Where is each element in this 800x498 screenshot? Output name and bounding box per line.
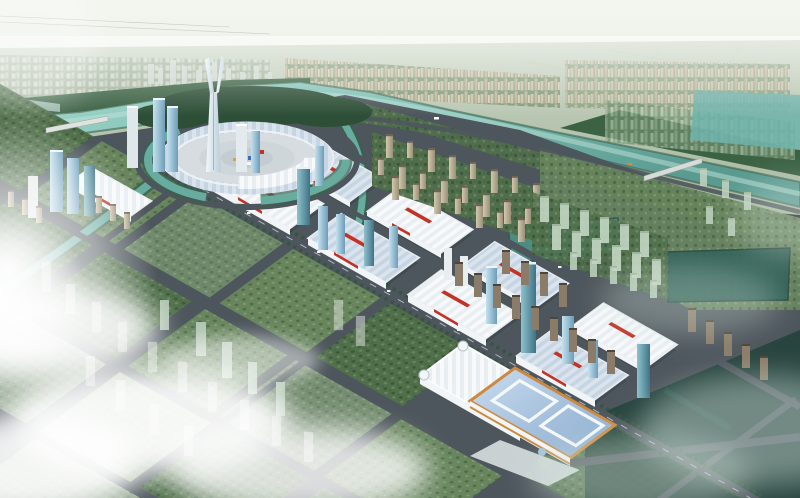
fountain	[538, 448, 546, 456]
horizon-haze	[0, 36, 800, 116]
aerial-render	[0, 0, 800, 498]
